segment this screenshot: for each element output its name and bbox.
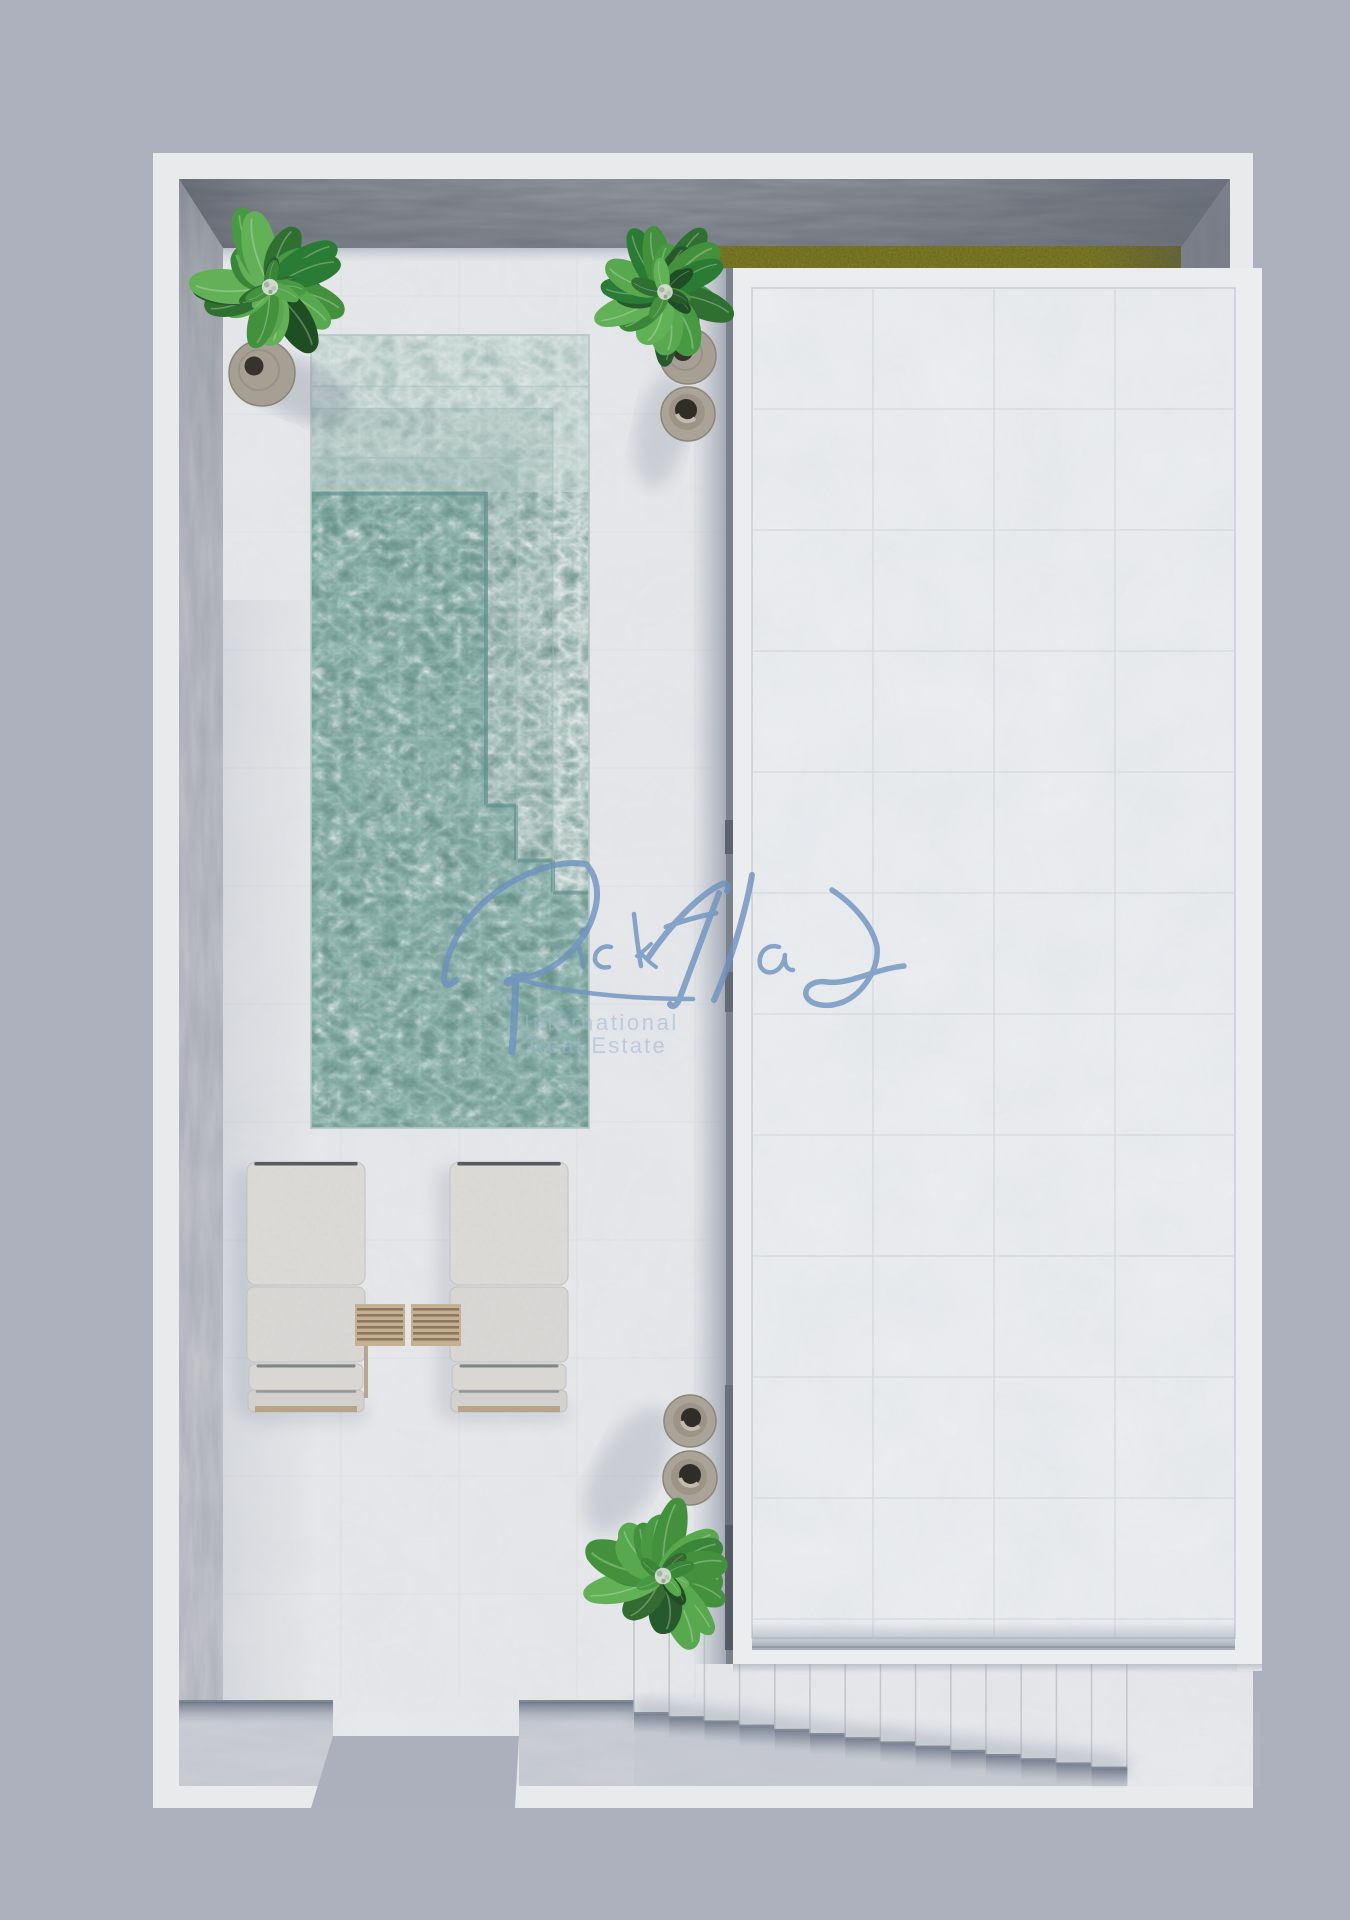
svg-text:International: International	[524, 1010, 679, 1035]
svg-text:Real Estate: Real Estate	[529, 1033, 667, 1058]
